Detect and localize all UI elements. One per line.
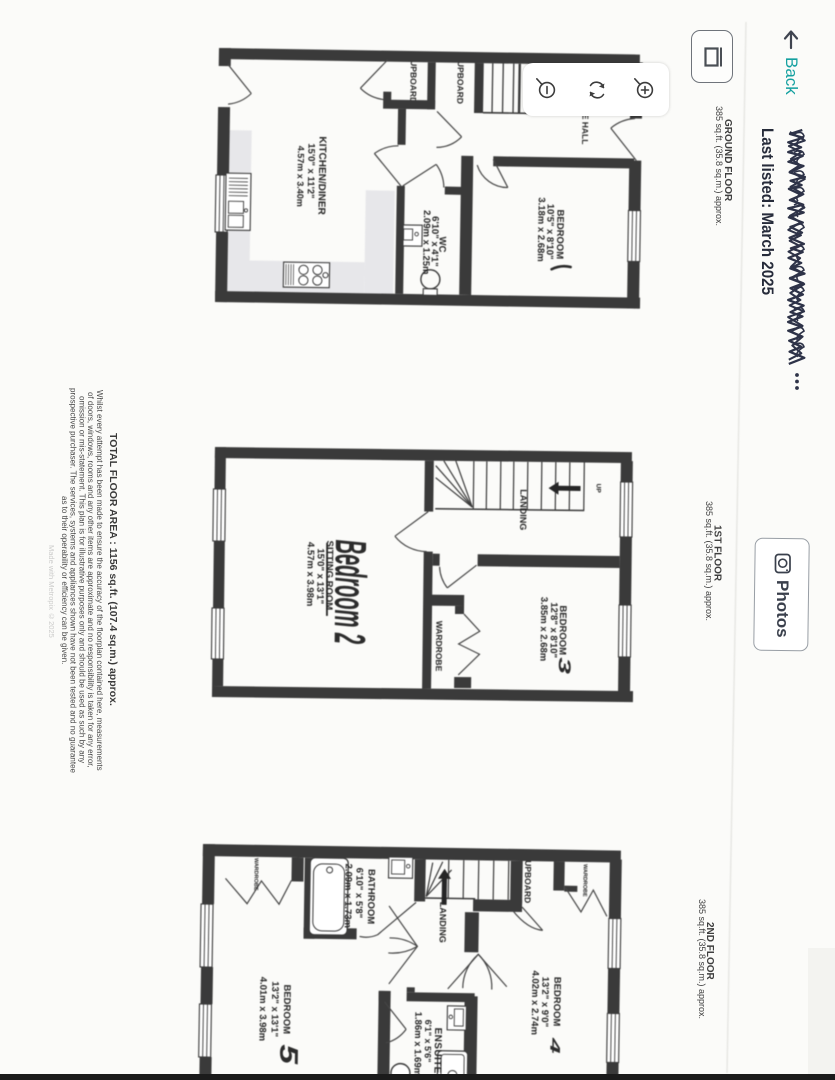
- svg-text:WARDROBE: WARDROBE: [581, 864, 588, 897]
- svg-text:CUPBOARD: CUPBOARD: [523, 854, 534, 903]
- svg-text:3.18m x 2.68m: 3.18m x 2.68m: [535, 197, 547, 262]
- svg-text:5: 5: [274, 1044, 303, 1065]
- svg-text:LANDING: LANDING: [437, 902, 448, 943]
- svg-text:BATHROOM: BATHROOM: [365, 869, 377, 924]
- svg-text:4.02m x 2.74m: 4.02m x 2.74m: [529, 970, 541, 1035]
- svg-text:6'1" x 5'6": 6'1" x 5'6": [423, 1020, 434, 1063]
- svg-text:4.01m x 3.98m: 4.01m x 3.98m: [256, 977, 268, 1042]
- svg-text:4: 4: [547, 1037, 563, 1054]
- svg-text:WARDROBE: WARDROBE: [252, 858, 259, 891]
- svg-text:3.85m x 2.68m: 3.85m x 2.68m: [537, 597, 549, 662]
- svg-text:13'2" x 13'1": 13'2" x 13'1": [268, 981, 280, 1037]
- svg-text:4.57m x 3.40m: 4.57m x 3.40m: [295, 146, 306, 207]
- svg-text:WARDROBE: WARDROBE: [434, 621, 445, 672]
- svg-text:UP: UP: [594, 484, 601, 494]
- svg-text:1.86m x 1.69m: 1.86m x 1.69m: [411, 1012, 423, 1077]
- svg-text:Bedroom 2: Bedroom 2: [324, 539, 374, 644]
- svg-text:LANDING: LANDING: [518, 489, 529, 530]
- svg-text:4.57m x 3.98m: 4.57m x 3.98m: [304, 542, 316, 607]
- svg-text:2.09m x 1.73m: 2.09m x 1.73m: [342, 863, 354, 928]
- svg-text:BEDROOM: BEDROOM: [281, 984, 293, 1034]
- svg-text:6'10" x 5'8": 6'10" x 5'8": [353, 868, 365, 919]
- svg-text:3: 3: [555, 657, 574, 674]
- svg-text:BEDROOM: BEDROOM: [551, 977, 563, 1027]
- svg-text:2.09m x 1.25m: 2.09m x 1.25m: [420, 210, 432, 275]
